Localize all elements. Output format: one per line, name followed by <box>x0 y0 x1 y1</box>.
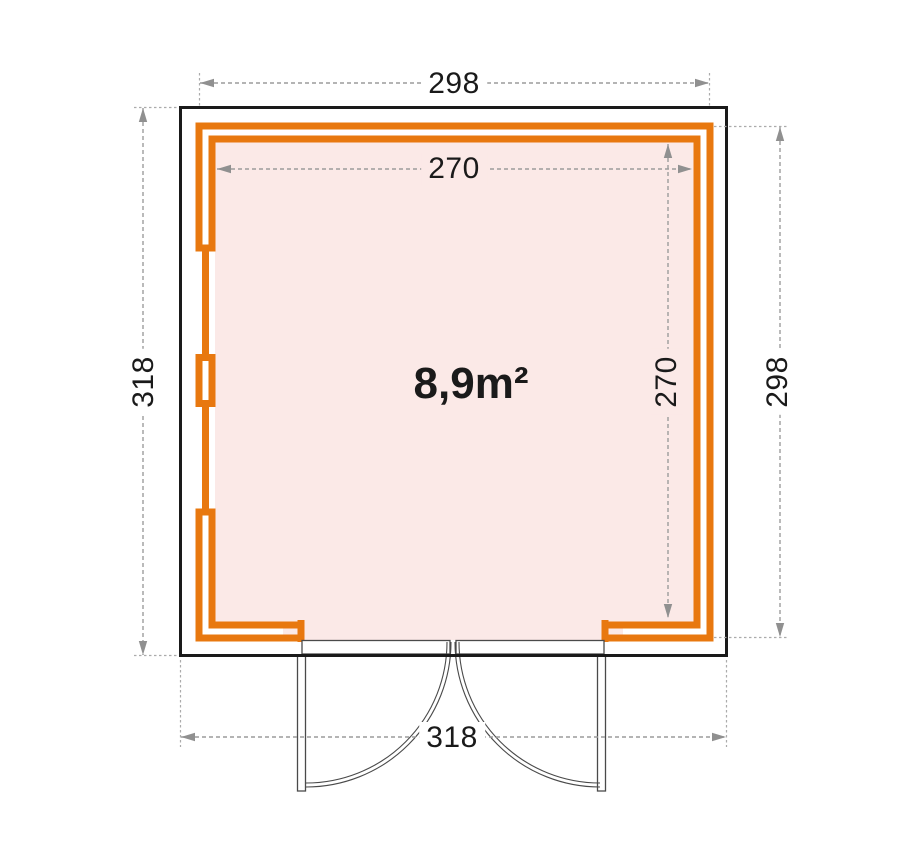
door-leaf-open-right <box>598 656 606 791</box>
arrow-left-icon <box>200 79 214 87</box>
arrow-up-icon <box>139 108 147 122</box>
door-leaf-closed-left <box>302 641 450 655</box>
dimension-label-base-depth: 318 <box>128 349 160 415</box>
dimension-label-outer-width: 298 <box>421 68 487 100</box>
arrow-down-icon <box>139 641 147 655</box>
dimension-label-base-width: 318 <box>419 722 485 754</box>
floor-plan-canvas <box>0 0 916 842</box>
area-label: 8,9m² <box>414 362 529 406</box>
dimension-label-inner-depth: 270 <box>651 349 683 415</box>
double-door <box>298 641 606 792</box>
door-swing-arc-right <box>455 642 600 787</box>
left-wall-joint-box <box>199 358 212 404</box>
door-leaf-open-left <box>298 656 306 791</box>
arrow-left-icon <box>181 733 195 741</box>
floor-plan-drawing: 298 270 318 270 298 318 8,9m² <box>0 0 916 842</box>
dimension-label-outer-depth: 298 <box>762 349 794 415</box>
arrow-right-icon <box>695 79 709 87</box>
arrow-right-icon <box>712 733 726 741</box>
arrow-up-icon <box>776 127 784 141</box>
arrow-down-icon <box>776 623 784 637</box>
door-swing-arc-left <box>306 642 451 787</box>
door-leaf-closed-right <box>456 641 604 655</box>
dimension-label-inner-width: 270 <box>421 153 487 185</box>
